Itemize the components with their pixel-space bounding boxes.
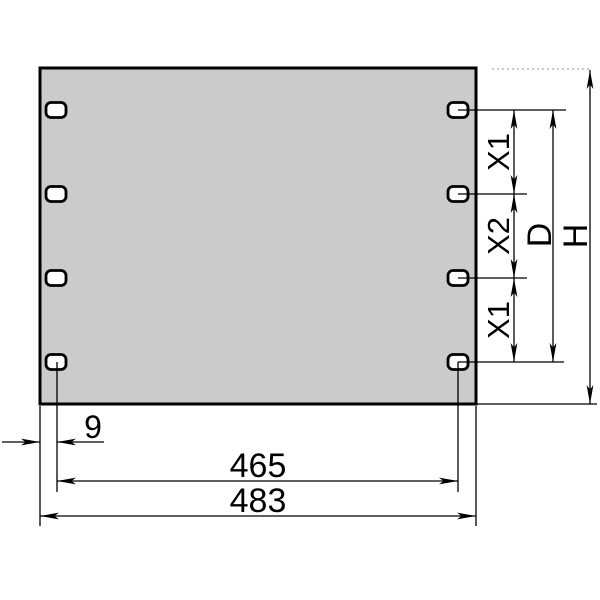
rack-panel-technical-drawing: 9 465 483 X1 X2 X1 D H bbox=[0, 0, 600, 600]
dim-label-d: D bbox=[521, 223, 559, 248]
dim-label-x2: X2 bbox=[481, 217, 516, 255]
dim-label-x1-upper: X1 bbox=[481, 133, 516, 171]
drawing-canvas: 9 465 483 X1 X2 X1 D H bbox=[0, 0, 600, 600]
mounting-slot-left-3 bbox=[46, 271, 66, 286]
panel-face bbox=[40, 68, 476, 404]
dim-label-465: 465 bbox=[230, 447, 287, 485]
dim-label-h: H bbox=[557, 224, 595, 249]
mounting-slot-left-1 bbox=[46, 103, 66, 118]
dim-label-9: 9 bbox=[84, 409, 102, 445]
dim-label-x1-lower: X1 bbox=[481, 301, 516, 339]
mounting-slot-left-4 bbox=[46, 355, 66, 370]
mounting-slot-left-2 bbox=[46, 187, 66, 202]
dim-label-483: 483 bbox=[230, 482, 287, 520]
